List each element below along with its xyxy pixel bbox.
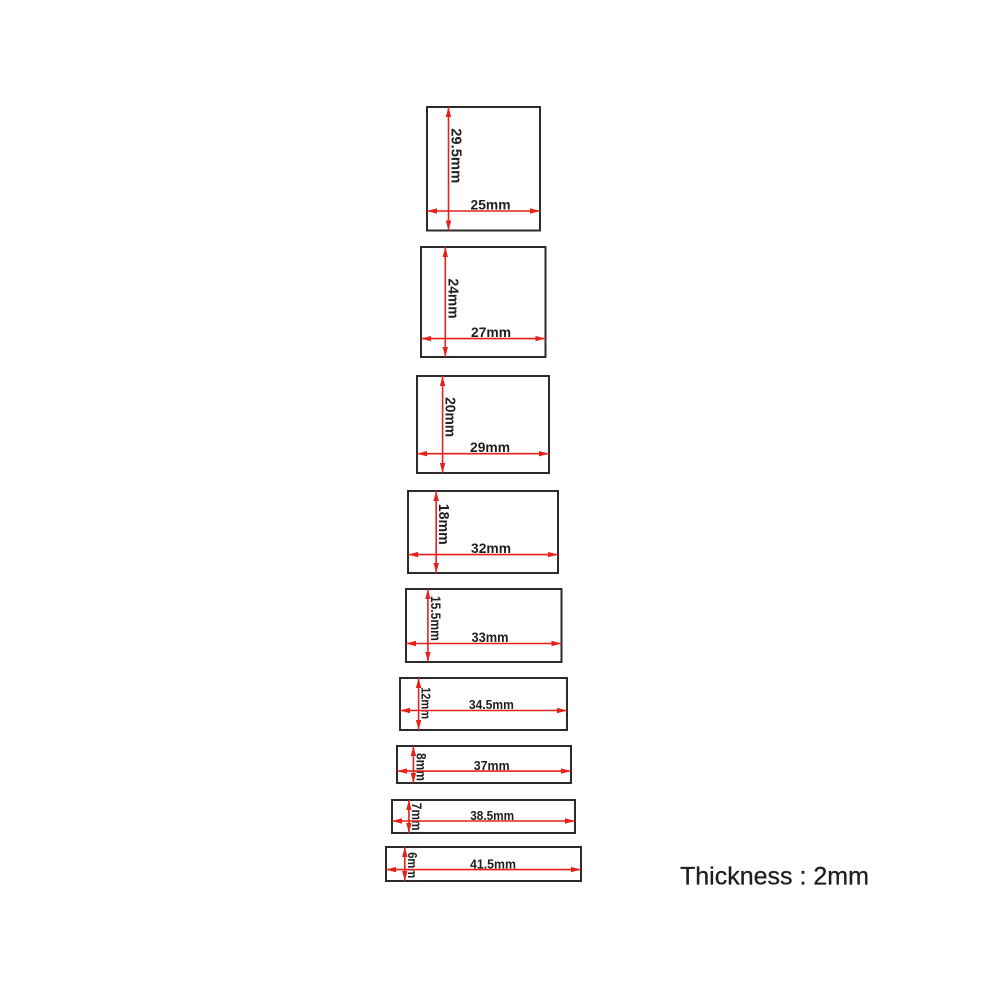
svg-text:6mm: 6mm (405, 852, 420, 878)
svg-text:7mm: 7mm (409, 803, 424, 831)
svg-text:29mm: 29mm (470, 439, 510, 455)
svg-text:25mm: 25mm (471, 196, 511, 212)
svg-text:15.5mm: 15.5mm (428, 596, 443, 641)
svg-text:41.5mm: 41.5mm (470, 857, 516, 872)
svg-text:24mm: 24mm (444, 279, 460, 319)
svg-text:8mm: 8mm (413, 753, 428, 781)
svg-text:18mm: 18mm (435, 504, 451, 545)
svg-text:33mm: 33mm (472, 630, 509, 645)
svg-text:37mm: 37mm (474, 758, 510, 773)
svg-text:Thickness : 2mm: Thickness : 2mm (680, 863, 869, 891)
svg-text:34.5mm: 34.5mm (469, 697, 514, 712)
svg-text:20mm: 20mm (442, 397, 458, 437)
svg-text:12mm: 12mm (419, 687, 434, 719)
svg-text:38.5mm: 38.5mm (470, 809, 514, 823)
svg-text:29.5mm: 29.5mm (448, 128, 465, 183)
svg-text:32mm: 32mm (471, 540, 511, 556)
svg-text:27mm: 27mm (471, 324, 511, 340)
